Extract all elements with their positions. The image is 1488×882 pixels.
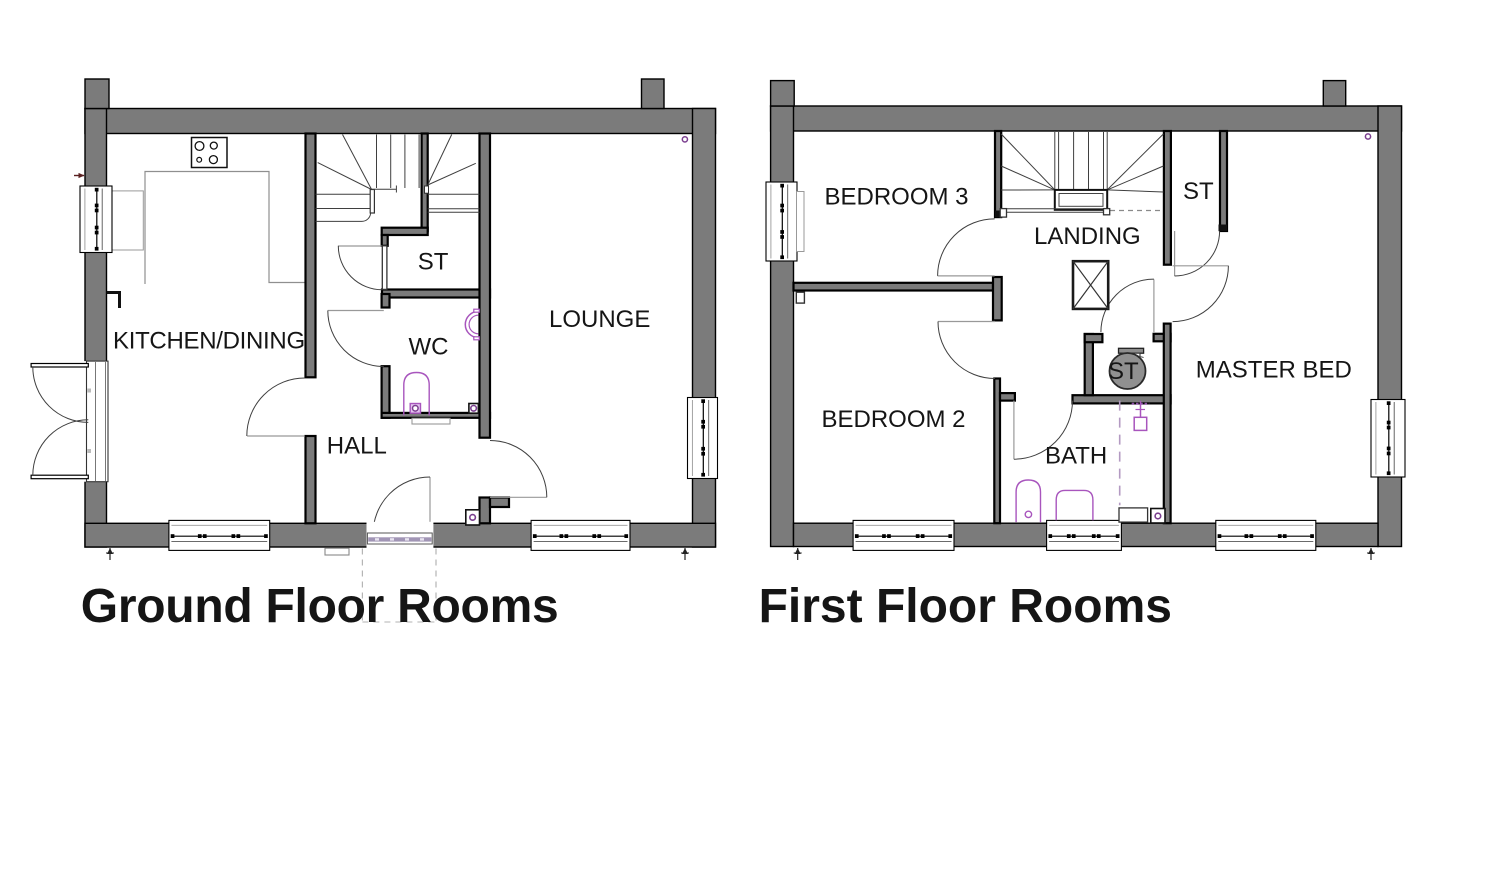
svg-text:KITCHEN/DINING: KITCHEN/DINING — [113, 328, 305, 355]
svg-text:MASTER BED: MASTER BED — [1196, 357, 1352, 384]
svg-text:LOUNGE: LOUNGE — [549, 306, 650, 333]
svg-text:LANDING: LANDING — [1034, 223, 1141, 250]
svg-text:BATH: BATH — [1045, 443, 1107, 470]
svg-text:WC: WC — [409, 334, 449, 361]
svg-text:ST: ST — [418, 248, 449, 275]
svg-text:First Floor Rooms: First Floor Rooms — [759, 580, 1172, 633]
svg-text:Ground Floor Rooms: Ground Floor Rooms — [81, 580, 559, 633]
svg-text:HALL: HALL — [327, 433, 387, 460]
svg-text:BEDROOM 3: BEDROOM 3 — [825, 184, 969, 211]
svg-text:ST: ST — [1108, 358, 1139, 385]
svg-text:ST: ST — [1183, 178, 1214, 205]
svg-text:BEDROOM 2: BEDROOM 2 — [822, 406, 966, 433]
